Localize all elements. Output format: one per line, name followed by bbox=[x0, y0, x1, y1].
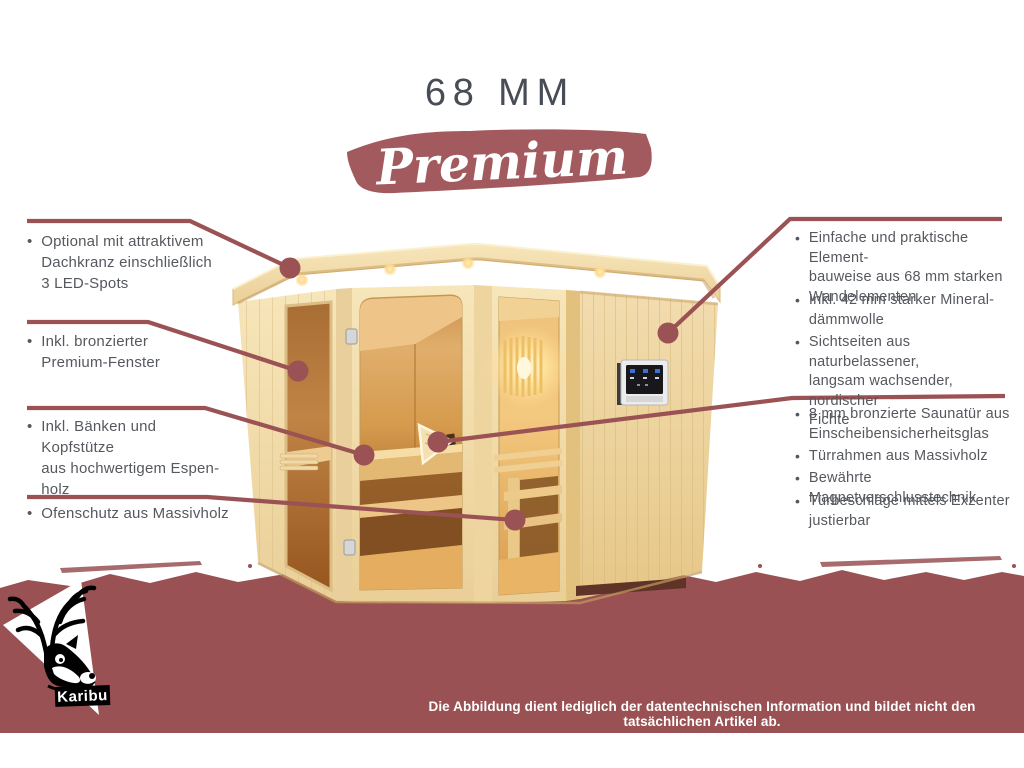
bullet-marker: • bbox=[27, 416, 32, 500]
disclaimer-text: Die Abbildung dient lediglich der datent… bbox=[388, 699, 1016, 729]
brand-label: Karibu bbox=[57, 687, 108, 706]
door-hinge bbox=[344, 540, 355, 555]
page-title: 68 MM bbox=[330, 72, 670, 115]
bullet-marker: • bbox=[795, 492, 800, 531]
sauna-illustration bbox=[233, 244, 720, 603]
callout-dot-fenster bbox=[288, 361, 309, 382]
callout-dot-saunatuer bbox=[428, 432, 449, 453]
feature-item-tuerrahmen: • Türrahmen aus Massivholz bbox=[795, 447, 1020, 467]
led-spot bbox=[383, 262, 397, 276]
callout-dot-ofenschutz bbox=[505, 510, 526, 531]
sauna-control-panel bbox=[617, 360, 668, 405]
bullet-marker: • bbox=[27, 231, 32, 294]
bullet-marker: • bbox=[795, 447, 800, 467]
sauna-infographic: Karibu 68 MM Premium • Optional mit attr… bbox=[0, 0, 1024, 768]
brand-box: Karibu bbox=[55, 685, 111, 707]
vent-grille bbox=[280, 454, 318, 470]
callout-dot-wandelemente bbox=[658, 323, 679, 344]
callout-dot-baenke bbox=[354, 445, 375, 466]
feature-item-daemmwolle: • Inkl. 42 mm starker Mineral- dämmwolle bbox=[795, 291, 1020, 330]
brush-streak bbox=[820, 556, 1002, 567]
led-spot bbox=[593, 265, 607, 279]
corner-post bbox=[566, 290, 580, 601]
feature-item-baenke: • Inkl. Bänken und Kopfstütze aus hochwe… bbox=[27, 416, 222, 500]
feature-text: Türrahmen aus Massivholz bbox=[809, 447, 988, 467]
door-hinge bbox=[346, 329, 357, 344]
bullet-marker: • bbox=[795, 291, 800, 330]
premium-script-label: Premium bbox=[351, 122, 654, 201]
feature-text: Inkl. bronzierter Premium-Fenster bbox=[41, 331, 160, 373]
door-right-post bbox=[474, 285, 492, 603]
brush-streak bbox=[60, 561, 202, 573]
feature-item-fenster: • Inkl. bronzierter Premium-Fenster bbox=[27, 331, 212, 373]
feature-text: Inkl. 42 mm starker Mineral- dämmwolle bbox=[809, 291, 994, 330]
bullet-marker: • bbox=[27, 331, 32, 373]
callout-dot-dachkranz bbox=[280, 258, 301, 279]
feature-text: Inkl. Bänken und Kopfstütze aus hochwert… bbox=[41, 416, 222, 500]
feature-item-ofenschutz: • Ofenschutz aus Massivholz bbox=[27, 503, 237, 524]
feature-text: Ofenschutz aus Massivholz bbox=[41, 503, 229, 524]
led-spot bbox=[461, 256, 475, 270]
bullet-marker: • bbox=[27, 503, 32, 524]
feature-text: Optional mit attraktivem Dachkranz einsc… bbox=[41, 231, 212, 294]
feature-text: 8 mm bronzierte Saunatür aus Einscheiben… bbox=[809, 405, 1010, 444]
feature-item-tuerbeschlaege: • Türbeschläge mittels Exzenter justierb… bbox=[795, 492, 1020, 531]
sauna-left-window bbox=[286, 302, 331, 590]
feature-text: Türbeschläge mittels Exzenter justierbar bbox=[809, 492, 1010, 531]
feature-item-dachkranz: • Optional mit attraktivem Dachkranz ein… bbox=[27, 231, 212, 294]
bullet-marker: • bbox=[795, 405, 800, 444]
feature-item-saunatuer: • 8 mm bronzierte Saunatür aus Einscheib… bbox=[795, 405, 1020, 444]
